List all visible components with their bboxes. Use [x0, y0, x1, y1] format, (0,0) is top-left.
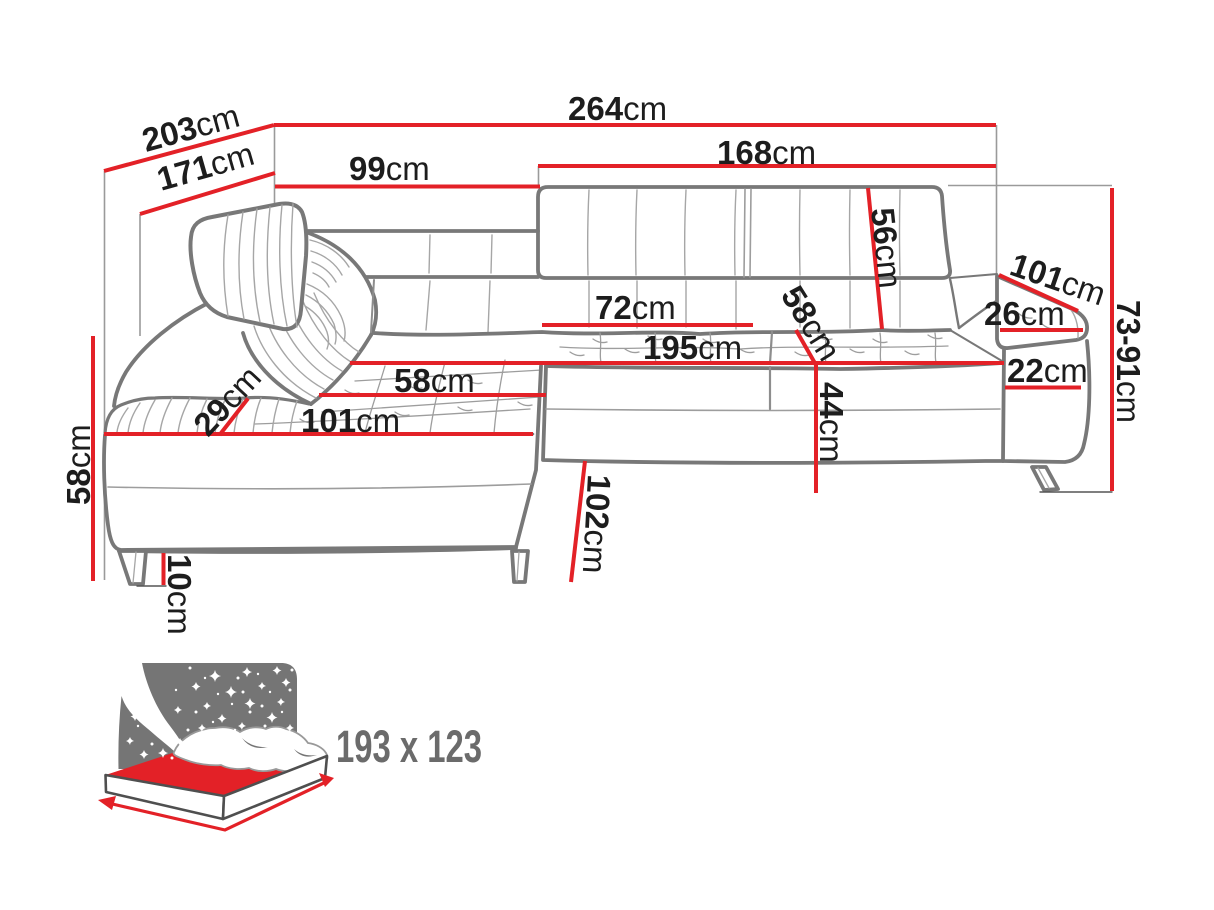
- svg-text:195cm: 195cm: [643, 329, 742, 366]
- svg-text:99cm: 99cm: [349, 150, 430, 187]
- svg-text:193 x 123: 193 x 123: [336, 721, 482, 772]
- svg-text:72cm: 72cm: [595, 289, 676, 326]
- svg-text:22cm: 22cm: [1007, 352, 1088, 389]
- svg-text:58cm: 58cm: [60, 424, 97, 505]
- svg-text:73-91cm: 73-91cm: [1110, 300, 1147, 423]
- svg-text:10cm: 10cm: [161, 554, 198, 635]
- svg-text:102cm: 102cm: [576, 474, 618, 575]
- svg-text:58cm: 58cm: [394, 362, 475, 399]
- svg-text:44cm: 44cm: [813, 382, 850, 463]
- svg-text:168cm: 168cm: [717, 134, 816, 171]
- svg-text:101cm: 101cm: [301, 402, 400, 439]
- svg-text:26cm: 26cm: [984, 295, 1065, 332]
- svg-text:264cm: 264cm: [568, 90, 667, 127]
